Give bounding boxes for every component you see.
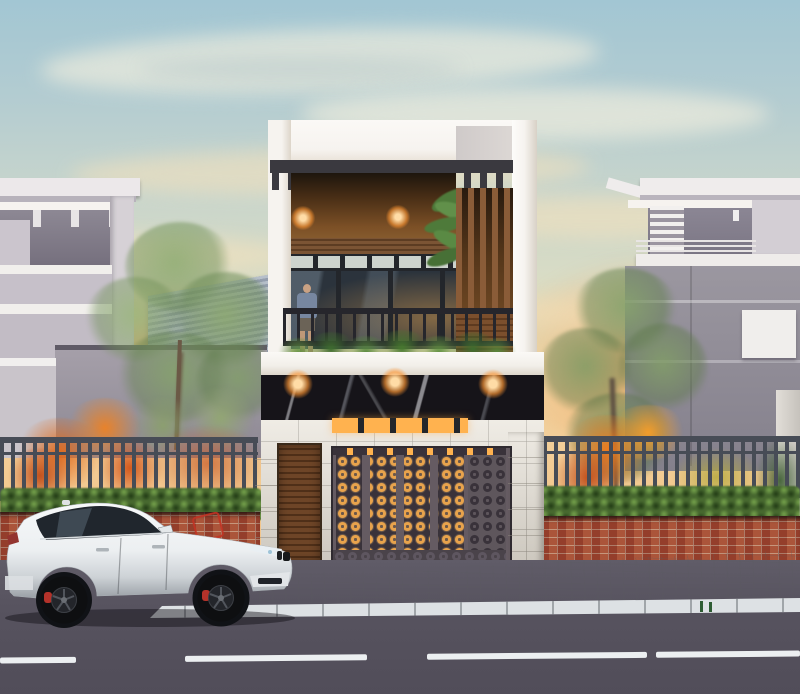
pergola-beam — [270, 160, 513, 173]
right-house-white-panel — [742, 310, 796, 358]
car-caliper-rear — [44, 592, 52, 603]
car-bumper-intake — [258, 578, 282, 584]
gate-top-band — [333, 448, 506, 455]
drain-mark — [709, 602, 712, 612]
car-door-handle — [152, 545, 165, 549]
lane-dash — [0, 657, 76, 664]
car-hub-rear — [61, 597, 67, 603]
car-headlight-lens — [268, 550, 272, 554]
drain-mark — [700, 601, 703, 612]
car-door-handle — [96, 548, 109, 552]
left-house-side-cap — [0, 358, 56, 366]
gate-muntins — [336, 455, 468, 550]
right-house-railing — [636, 240, 756, 254]
left-house-pillar — [33, 210, 41, 227]
lane-dash — [185, 654, 367, 662]
fence-left-mid-rail — [0, 452, 258, 455]
parked-suv — [0, 486, 296, 652]
left-house-pillar — [71, 210, 79, 227]
cloud-wisp — [140, 58, 460, 80]
car-antenna — [62, 500, 70, 505]
car-grille — [283, 552, 290, 561]
lane-dash — [656, 651, 800, 658]
street-scene — [0, 0, 800, 694]
ceiling-downlight — [289, 204, 317, 232]
main-house-top-right-block — [456, 126, 513, 162]
soffit-downlight — [476, 368, 510, 400]
car-grille — [277, 551, 282, 560]
lane-dash — [427, 652, 647, 660]
car-rear-bumper — [5, 576, 33, 590]
gate-transom-glow — [332, 418, 468, 433]
gate-pattern-dark — [468, 455, 506, 550]
wood-louver-screen — [456, 188, 513, 312]
right-house-band — [636, 254, 800, 266]
left-house-roof-slab — [0, 178, 140, 196]
person-head — [303, 284, 311, 293]
main-house-right-column — [512, 120, 537, 356]
right-house-lamp — [733, 210, 739, 221]
car-hub-front — [218, 595, 224, 601]
gate-pillar-right — [508, 432, 544, 578]
ceiling-downlight — [384, 203, 412, 231]
fence-right-mid-rail — [543, 451, 800, 454]
soffit-downlight — [281, 368, 315, 400]
soffit-downlight — [378, 366, 412, 398]
